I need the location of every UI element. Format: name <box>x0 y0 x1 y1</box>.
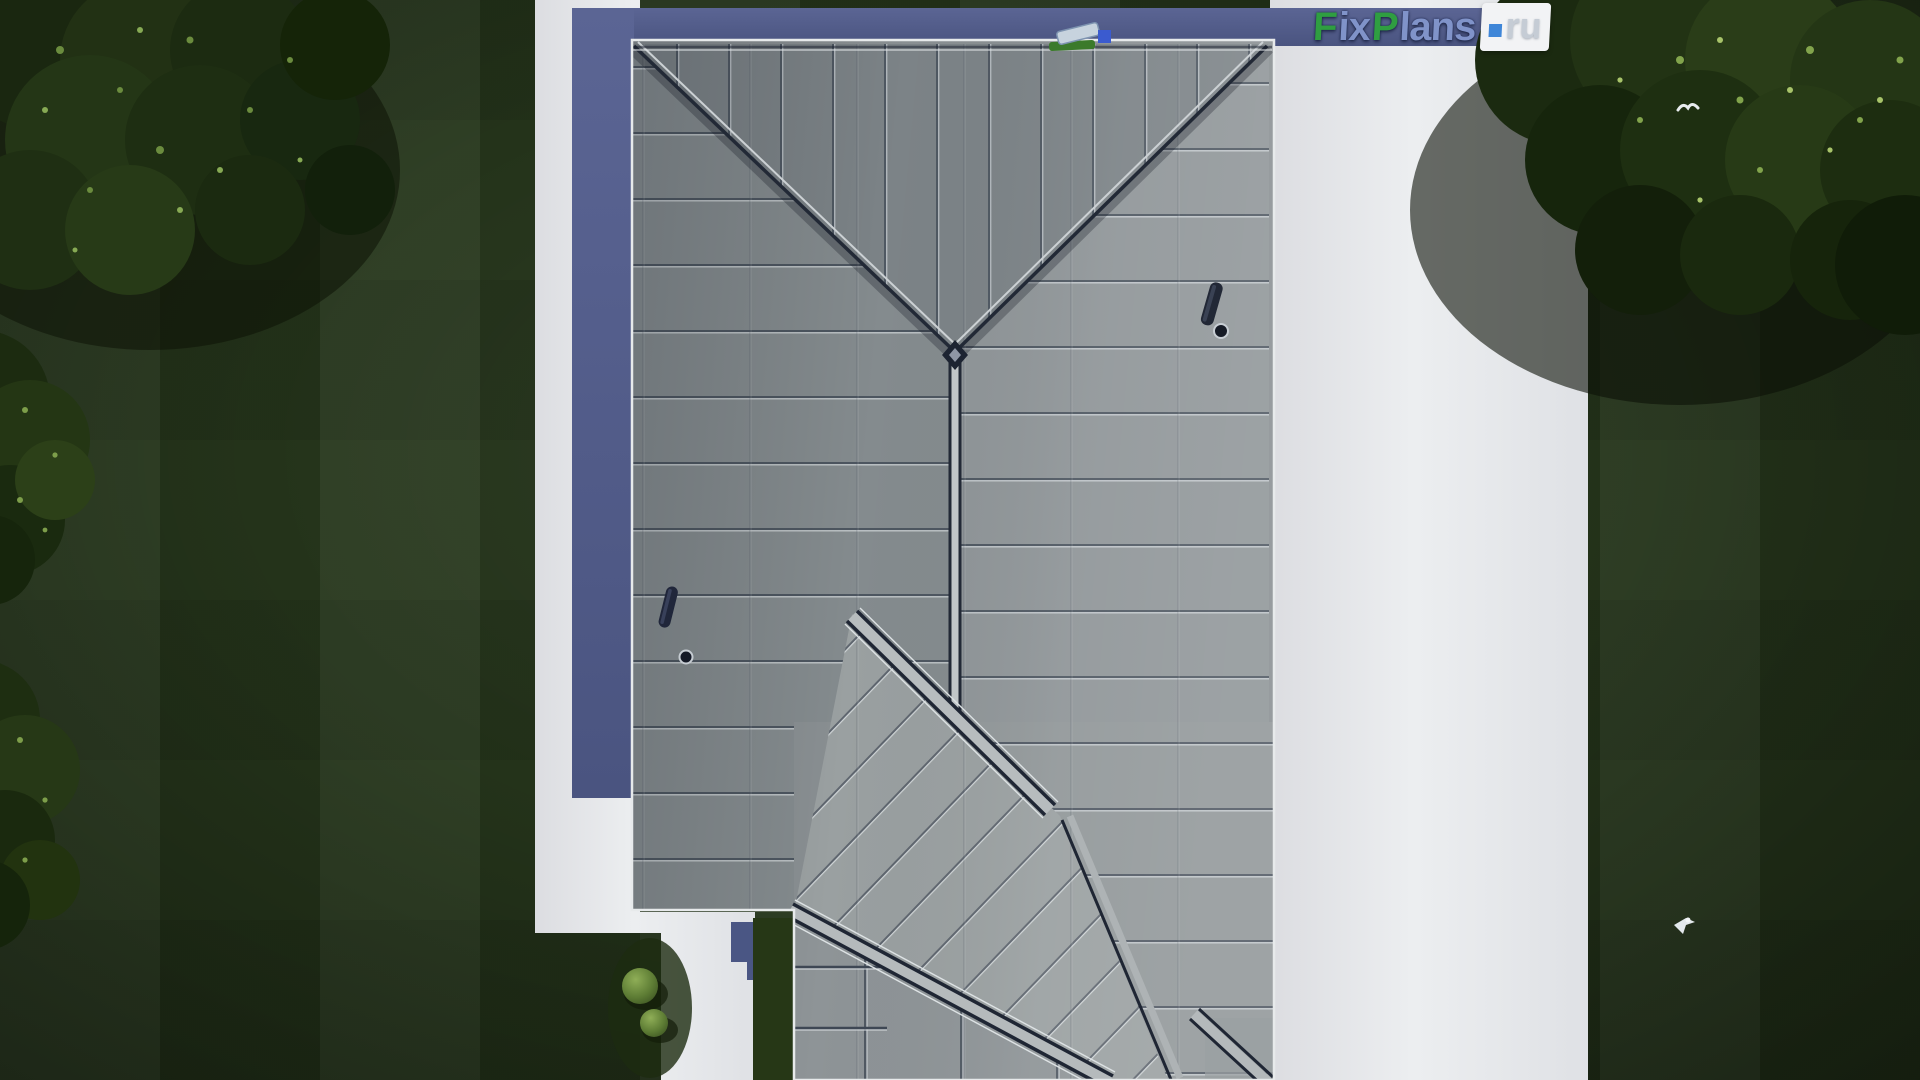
aerial-site-view: FixPlans ru <box>0 0 1920 1080</box>
site-plan-graphics <box>0 0 1920 1080</box>
watermark-segment: P <box>1371 7 1399 47</box>
tree-top-left <box>0 0 400 350</box>
hedge-strip <box>753 918 798 1080</box>
foliage-left-upper <box>0 330 95 605</box>
watermark-segment: ix <box>1337 7 1370 47</box>
watermark-tld-box: ru <box>1479 3 1551 51</box>
bird-bottom-right <box>1674 918 1695 935</box>
watermark-dot-square <box>1488 24 1502 37</box>
shadow-band-left <box>572 8 634 798</box>
tree-top-right <box>1410 0 1920 405</box>
watermark-fixplans: FixPlans ru <box>1312 3 1551 51</box>
watermark-tld: ru <box>1505 8 1543 44</box>
foliage-left-lower <box>0 660 80 950</box>
watermark-segment: F <box>1312 7 1338 47</box>
watermark-segment: lans <box>1398 7 1476 47</box>
